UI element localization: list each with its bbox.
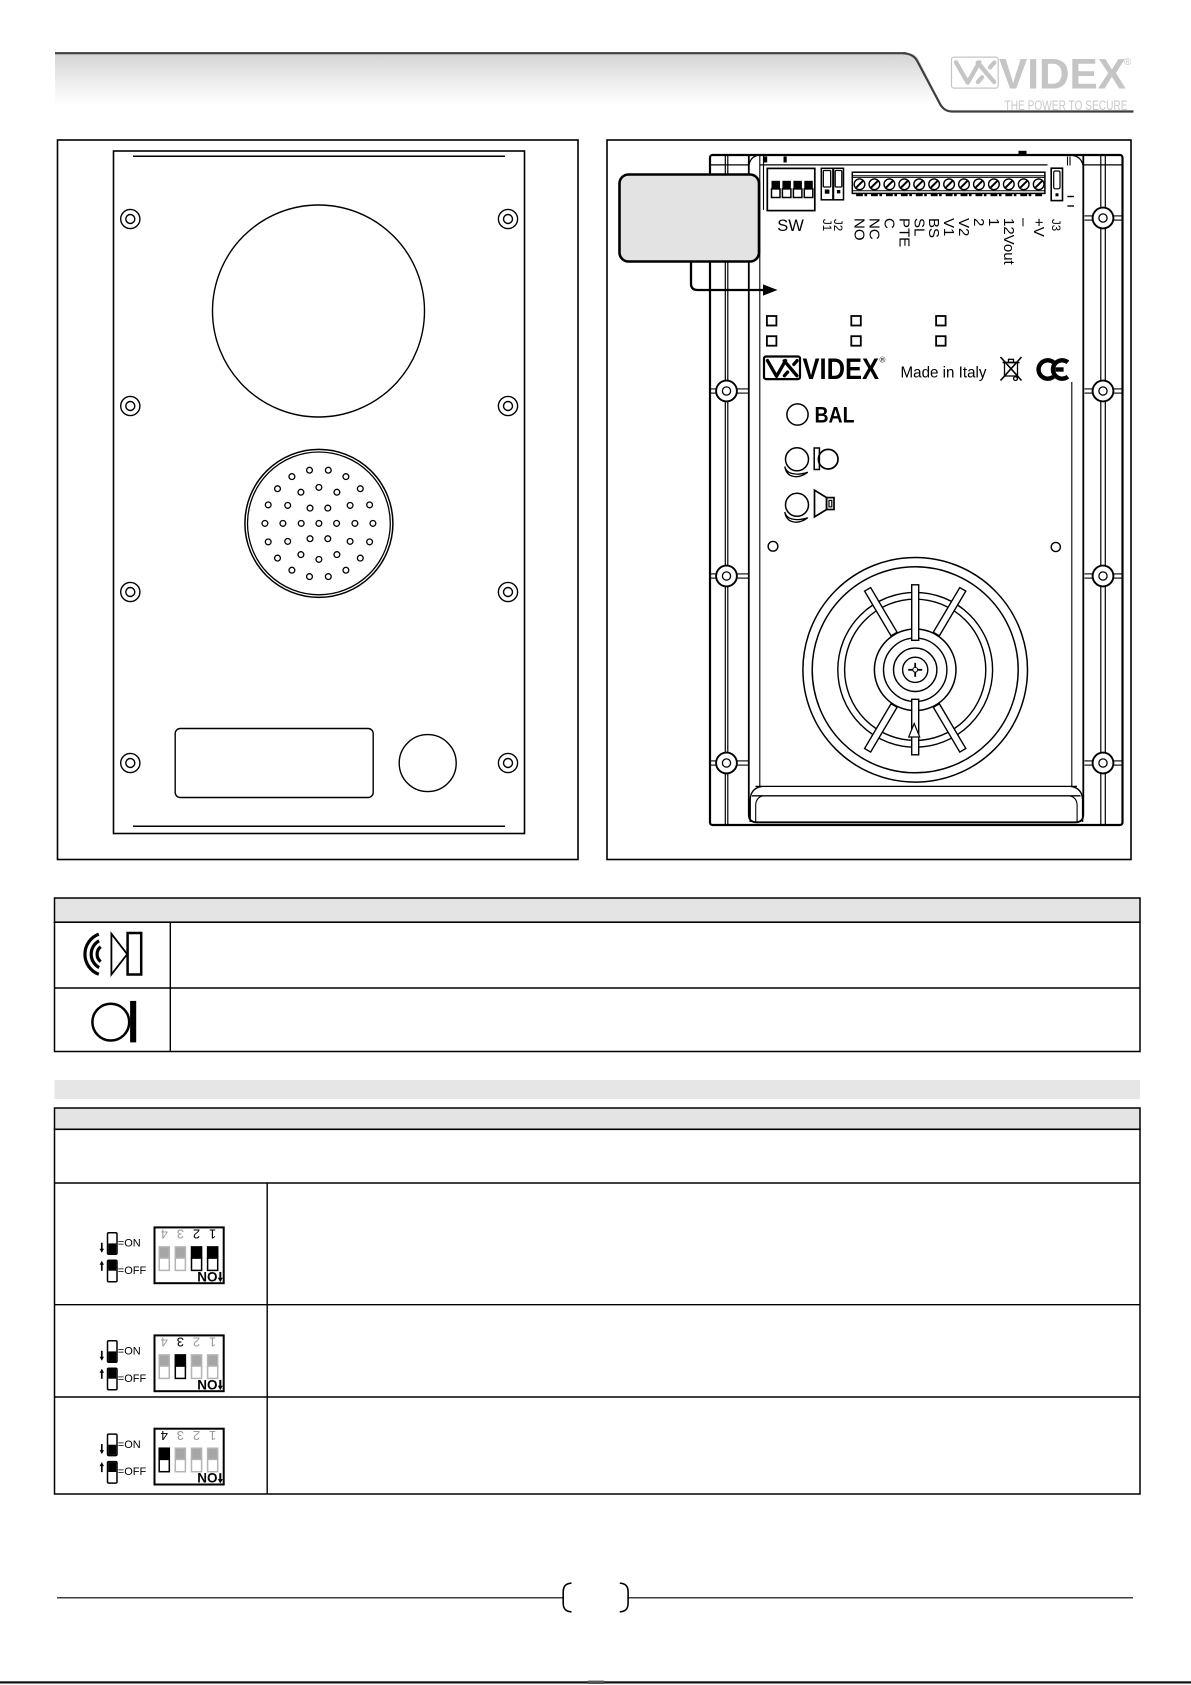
svg-text:®: ®	[1124, 57, 1132, 68]
svg-text:4: 4	[161, 1428, 168, 1443]
svg-text:–: –	[1015, 218, 1032, 227]
svg-text:VIDEX: VIDEX	[999, 51, 1126, 99]
svg-text:4: 4	[161, 1335, 168, 1350]
svg-text:+V: +V	[1030, 218, 1047, 237]
svg-text:BAL: BAL	[815, 403, 855, 428]
svg-text:=OFF: =OFF	[118, 1265, 147, 1277]
svg-text:3: 3	[177, 1335, 184, 1350]
svg-text:=ON: =ON	[118, 1346, 141, 1358]
svg-text:2: 2	[193, 1227, 200, 1242]
svg-text:2: 2	[193, 1428, 200, 1443]
svg-text:12Vout: 12Vout	[1000, 218, 1017, 266]
svg-text:1: 1	[209, 1227, 216, 1242]
svg-text:=OFF: =OFF	[118, 1466, 147, 1478]
svg-text:=ON: =ON	[118, 1439, 141, 1451]
svg-text:BS: BS	[925, 218, 942, 238]
svg-text:=ON: =ON	[118, 1238, 141, 1250]
svg-text:1: 1	[209, 1335, 216, 1350]
svg-text:J2: J2	[831, 219, 843, 231]
svg-text:V2: V2	[955, 218, 972, 236]
svg-text:C: C	[881, 218, 898, 229]
svg-text:=OFF: =OFF	[118, 1373, 147, 1385]
svg-text:NO: NO	[851, 218, 868, 241]
svg-text:NO: NO	[197, 1269, 217, 1284]
svg-text:SW: SW	[777, 217, 804, 235]
svg-text:VIDEX: VIDEX	[803, 353, 880, 386]
svg-text:THE POWER TO SECURE: THE POWER TO SECURE	[1005, 98, 1128, 113]
svg-text:1: 1	[985, 218, 1002, 226]
svg-text:1: 1	[209, 1428, 216, 1443]
svg-text:SL: SL	[910, 218, 927, 236]
svg-text:V1: V1	[940, 218, 957, 236]
svg-text:J3: J3	[1049, 219, 1061, 231]
svg-text:3: 3	[177, 1227, 184, 1242]
svg-text:2: 2	[970, 218, 987, 226]
svg-text:J1: J1	[820, 219, 832, 231]
svg-text:NC: NC	[866, 218, 883, 240]
svg-text:Made in Italy: Made in Italy	[901, 365, 987, 382]
svg-text:NO: NO	[197, 1377, 217, 1392]
svg-text:®: ®	[880, 356, 886, 365]
svg-text:3: 3	[177, 1428, 184, 1443]
svg-text:PTE: PTE	[895, 218, 912, 247]
svg-text:NO: NO	[197, 1471, 217, 1486]
svg-text:4: 4	[161, 1227, 168, 1242]
svg-text:2: 2	[193, 1335, 200, 1350]
